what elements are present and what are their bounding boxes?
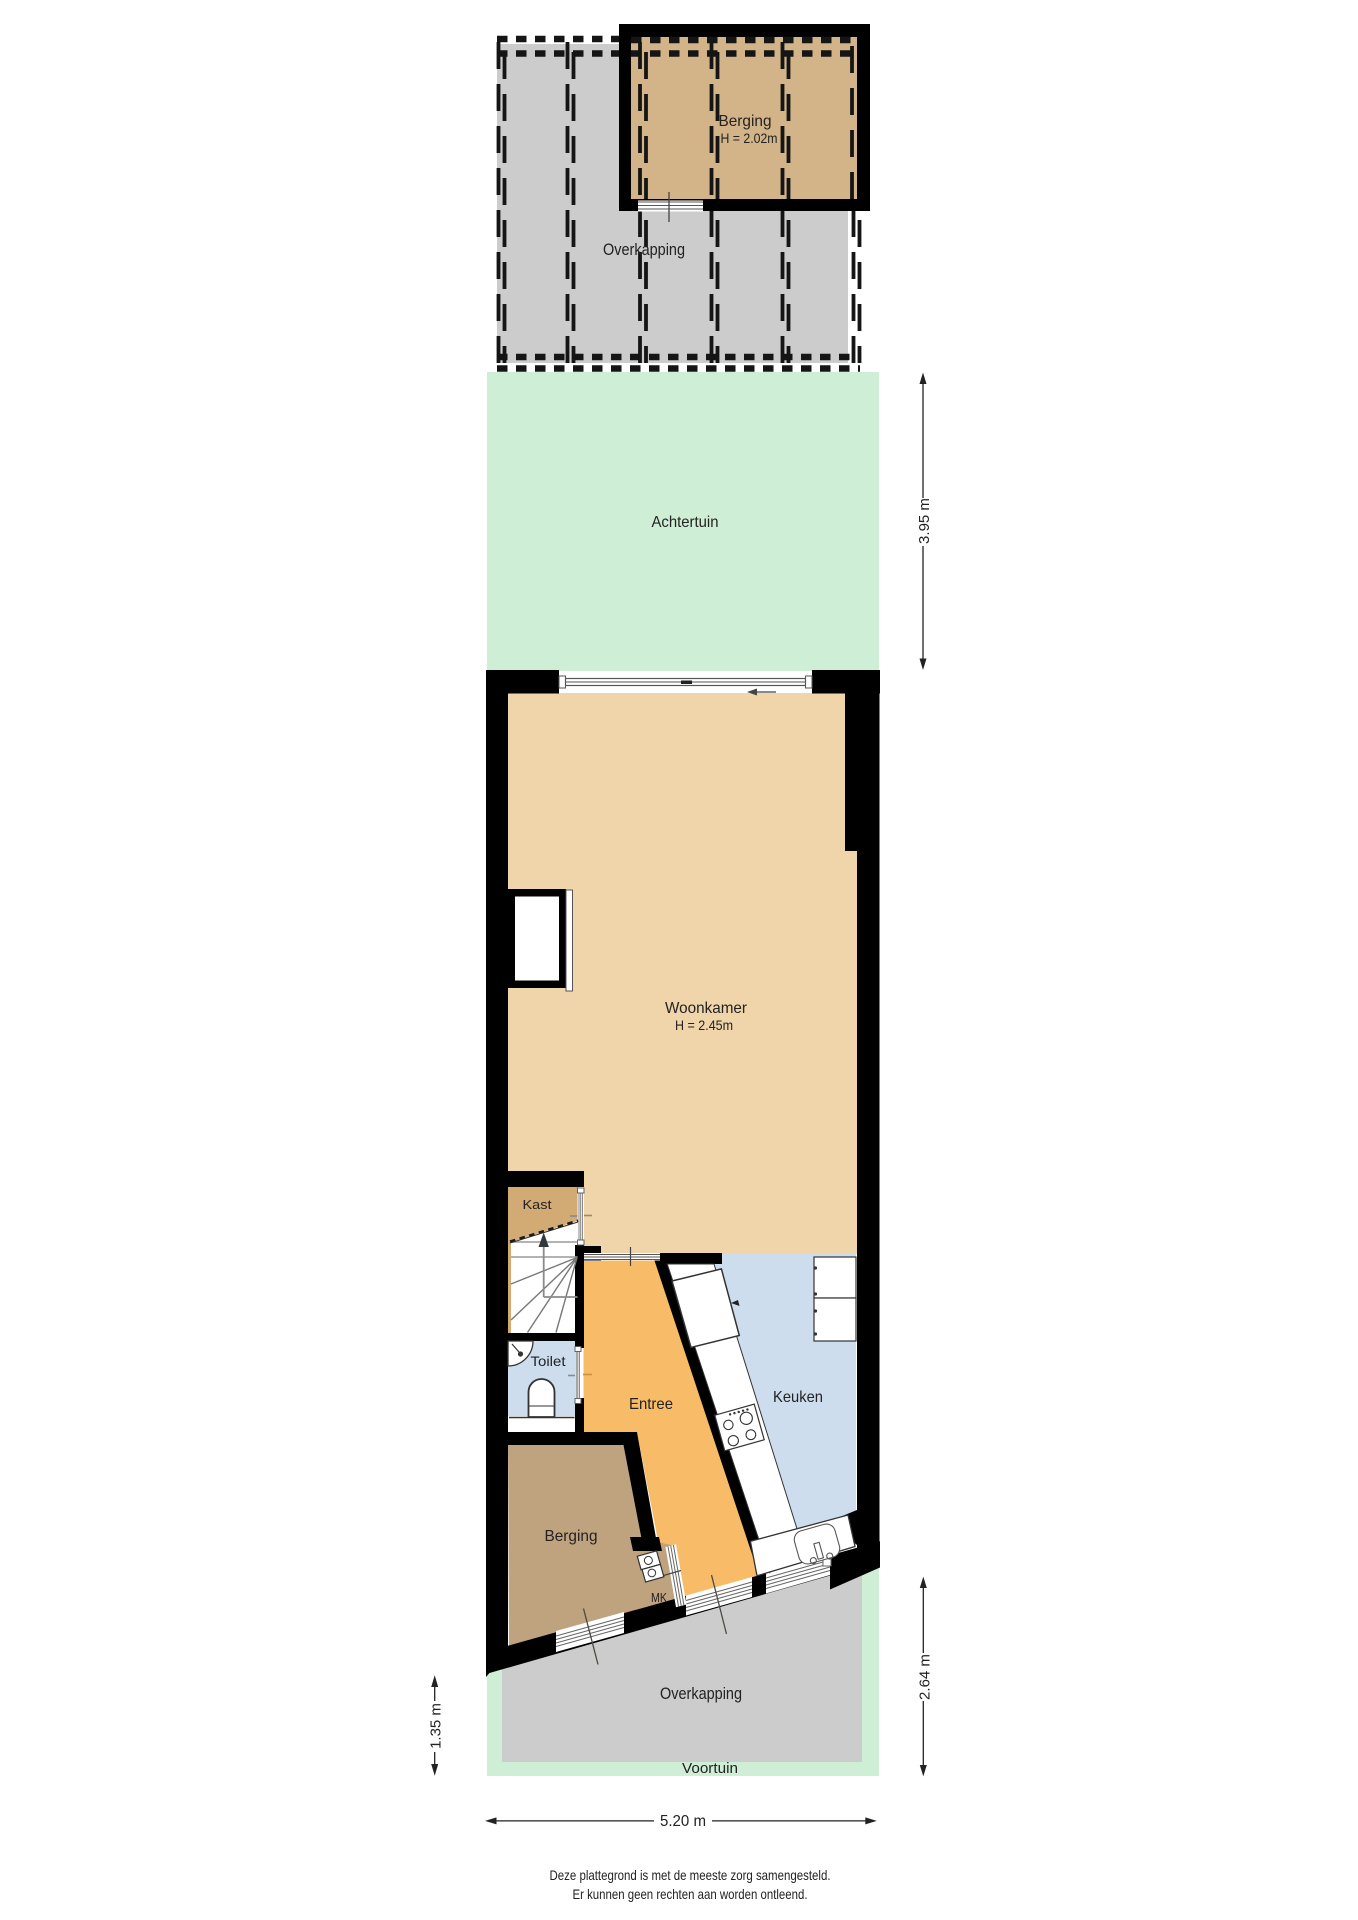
svg-text:1.35 m: 1.35 m <box>428 1703 445 1749</box>
svg-text:Toilet: Toilet <box>531 1353 566 1369</box>
svg-text:Berging: Berging <box>545 1528 598 1545</box>
svg-text:Achtertuin: Achtertuin <box>652 514 719 531</box>
svg-text:Berging: Berging <box>719 113 772 130</box>
svg-text:Woonkamer: Woonkamer <box>665 1000 748 1017</box>
svg-text:Kast: Kast <box>523 1197 552 1212</box>
svg-text:Overkapping: Overkapping <box>603 240 685 259</box>
svg-text:H = 2.45m: H = 2.45m <box>675 1018 733 1033</box>
svg-text:H = 2.02m: H = 2.02m <box>721 131 778 146</box>
svg-text:Deze plattegrond is met de mee: Deze plattegrond is met de meeste zorg s… <box>550 1867 831 1883</box>
svg-text:MK: MK <box>651 1590 667 1605</box>
svg-text:3.95 m: 3.95 m <box>916 498 933 544</box>
svg-text:Overkapping: Overkapping <box>660 1684 742 1703</box>
svg-text:5.20 m: 5.20 m <box>660 1813 706 1830</box>
svg-text:Er kunnen geen rechten aan wor: Er kunnen geen rechten aan worden ontlee… <box>573 1886 808 1902</box>
svg-text:2.64 m: 2.64 m <box>916 1654 933 1700</box>
svg-text:Keuken: Keuken <box>773 1389 823 1406</box>
svg-text:Voortuin: Voortuin <box>682 1760 738 1777</box>
svg-text:Entree: Entree <box>629 1396 673 1413</box>
